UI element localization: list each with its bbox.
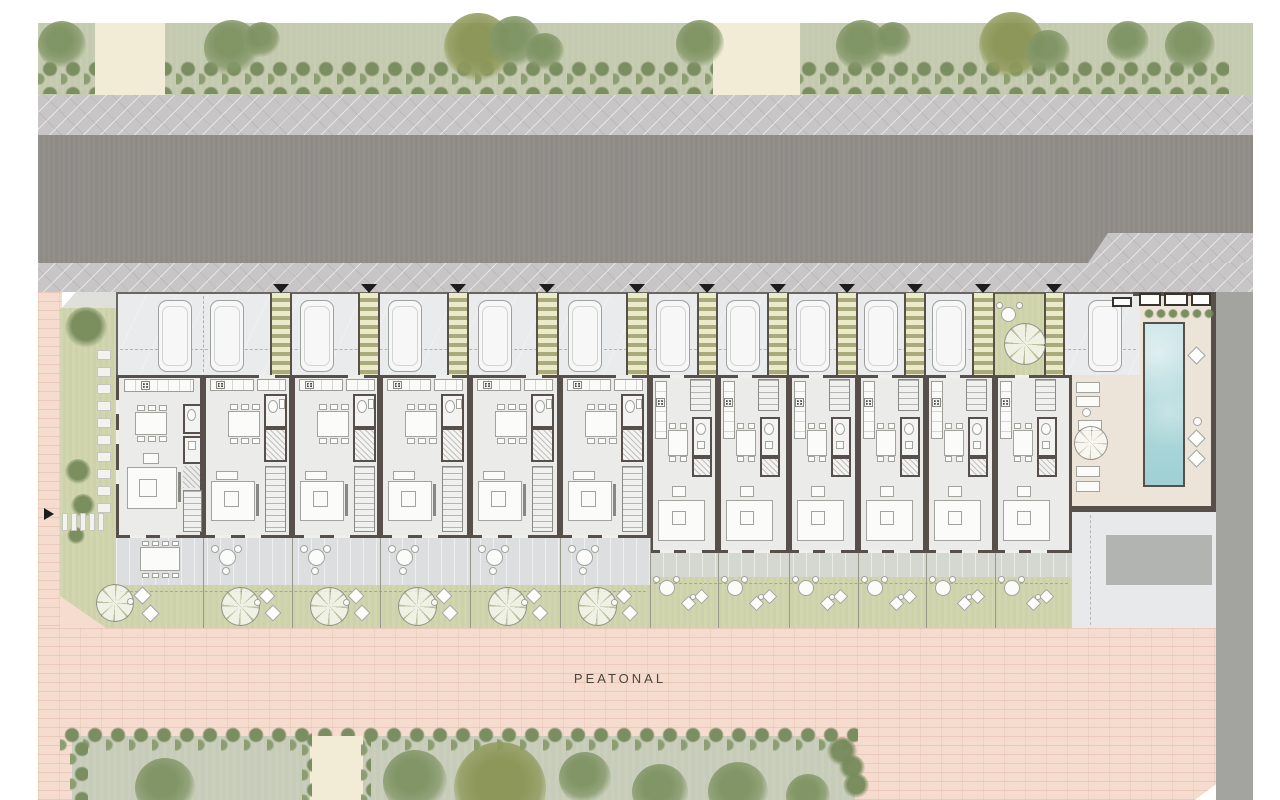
dining-table [495, 411, 527, 437]
car-body-line [936, 306, 962, 366]
entry-pergola [697, 293, 718, 375]
planter-plant [1144, 309, 1154, 319]
door-opening [1015, 375, 1029, 378]
sun-lounger [1076, 466, 1100, 477]
dining-table [405, 411, 437, 437]
chair [341, 404, 349, 410]
terrace-table [140, 547, 180, 571]
toilet [972, 423, 982, 435]
stove-icon [795, 398, 804, 407]
access-ramp [1106, 535, 1212, 585]
car-body-line [392, 306, 418, 366]
chair [996, 302, 1003, 309]
chair [222, 567, 230, 575]
sink [188, 441, 196, 450]
entry-arrow-icon [839, 284, 855, 293]
pouf [127, 598, 134, 605]
planter-plant [1204, 309, 1214, 319]
door-opening [526, 375, 542, 378]
shower-room [621, 428, 644, 462]
amenity-dashed-line [1090, 515, 1091, 625]
window [728, 550, 742, 553]
plot-divider [718, 553, 719, 628]
window [116, 430, 119, 444]
pouf [898, 594, 904, 600]
chair [721, 576, 728, 583]
chair [741, 576, 748, 583]
terrace-table [576, 549, 593, 566]
garden-tree [578, 587, 617, 626]
window [160, 535, 176, 538]
sink [456, 399, 462, 409]
kitchen-cabinet [434, 379, 463, 391]
stepping-stone [97, 503, 111, 513]
chair [1014, 423, 1021, 429]
toilet [764, 423, 774, 435]
tree [676, 20, 724, 68]
stairs [265, 466, 286, 532]
chair [998, 576, 1005, 583]
courtyard-table [1001, 307, 1016, 322]
coffee-table [401, 491, 416, 507]
car-body-line [214, 306, 240, 366]
sidewalk-north [38, 95, 1253, 135]
plot-divider [203, 538, 204, 628]
plot-divider [292, 538, 293, 628]
sun-lounger [1076, 481, 1100, 492]
pouf [966, 594, 972, 600]
stove-icon [305, 381, 314, 389]
dining-table [317, 411, 349, 437]
sink [279, 399, 285, 409]
car-body-line [162, 306, 188, 366]
toilet [187, 409, 196, 421]
window [936, 550, 950, 553]
garden-tree [488, 587, 527, 626]
car-body-line [1092, 306, 1118, 366]
shower-room [441, 428, 464, 462]
garden-dashed-line-west [120, 591, 646, 592]
entry-arrow-icon [699, 284, 715, 293]
pedestrian-street-label: PEATONAL [540, 671, 700, 686]
window [482, 535, 498, 538]
dining-table [135, 412, 167, 435]
stepping-stone [97, 350, 111, 360]
sink [546, 399, 552, 409]
sun-lounger [1076, 382, 1100, 393]
chair [311, 567, 319, 575]
chair [737, 423, 744, 429]
stairs [1035, 379, 1056, 411]
stove-icon [1001, 398, 1010, 407]
tree [1165, 21, 1215, 71]
north-path-east [713, 23, 800, 95]
dining-table [585, 411, 617, 437]
tv-bench [672, 486, 686, 497]
coffee-table [811, 511, 825, 525]
shower-room [531, 428, 554, 462]
chair [508, 438, 516, 444]
chair [429, 438, 437, 444]
chair [319, 404, 327, 410]
garden-tree [221, 587, 260, 626]
stove-icon [932, 398, 941, 407]
chair [478, 545, 486, 553]
plot-divider [858, 553, 859, 628]
shower-room [1037, 457, 1057, 477]
chair [399, 567, 407, 575]
hedge-bush [843, 773, 869, 799]
coffee-table [948, 511, 962, 525]
chair [501, 545, 509, 553]
door-opening [946, 375, 960, 378]
sink [905, 441, 913, 449]
entry-pergola [270, 293, 292, 375]
tv-bench [811, 486, 825, 497]
tree [1026, 30, 1070, 74]
entry-pergola [626, 293, 649, 375]
entry-arrow-icon [907, 284, 923, 293]
coffee-table [313, 491, 328, 507]
window [392, 535, 408, 538]
window [512, 535, 528, 538]
chair [211, 545, 219, 553]
planter-plant [1180, 309, 1190, 319]
tv [523, 484, 526, 516]
tv-bench [1017, 486, 1031, 497]
east-road [1216, 292, 1253, 800]
window [245, 535, 261, 538]
entry-pergola [972, 293, 995, 375]
chair [172, 541, 179, 546]
chair [162, 573, 169, 578]
stairs [622, 466, 643, 532]
window [962, 550, 978, 553]
sink [836, 441, 844, 449]
park-path-hedge-left [302, 731, 312, 800]
chair [152, 541, 159, 546]
clerestory-window [1191, 293, 1211, 306]
chair [956, 456, 963, 462]
sink [765, 441, 773, 449]
plot-divider [650, 538, 651, 628]
pouf [1035, 594, 1041, 600]
toilet [357, 400, 367, 413]
chair [609, 404, 617, 410]
window [602, 535, 618, 538]
chair [300, 545, 308, 553]
plot-divider [560, 538, 561, 628]
pouf [431, 599, 438, 606]
site-plan: PEATONAL [0, 0, 1280, 800]
stepping-stone [97, 486, 111, 496]
park-path-hedge-right [361, 731, 371, 800]
bush [65, 307, 107, 349]
garden-table [935, 580, 951, 596]
kitchen-counter [1000, 381, 1012, 439]
clerestory-window [1112, 297, 1132, 307]
chair [568, 545, 576, 553]
stepping-stone [97, 418, 111, 428]
chair [587, 438, 595, 444]
garden-table [798, 580, 814, 596]
pouf [611, 599, 618, 606]
chair [792, 576, 799, 583]
clerestory-window [1164, 293, 1188, 306]
tv-bench [216, 471, 238, 480]
pouf [254, 599, 261, 606]
terrace-table [486, 549, 503, 566]
plot-divider [789, 553, 790, 628]
chair [519, 404, 527, 410]
shower-room [692, 457, 712, 477]
chair [808, 423, 815, 429]
tv-bench [305, 471, 327, 480]
tree [526, 33, 564, 71]
chair [330, 404, 338, 410]
kitchen-cabinet [346, 379, 375, 391]
window [572, 535, 588, 538]
car-body-line [800, 306, 826, 366]
tv-bench [880, 486, 894, 497]
kitchen-counter [723, 381, 735, 439]
stove-icon [216, 381, 225, 389]
tv-bench [483, 471, 505, 480]
stove-icon [656, 398, 665, 407]
stepping-stone [97, 452, 111, 462]
toilet [625, 400, 635, 413]
tree [875, 22, 911, 58]
entry-arrow-icon [273, 284, 289, 293]
stepping-stone [97, 401, 111, 411]
tree [38, 21, 86, 69]
chair [142, 541, 149, 546]
dining-table [228, 411, 260, 437]
chair [1025, 423, 1032, 429]
shower-room [900, 457, 920, 477]
chair [1014, 456, 1021, 462]
door-opening [670, 375, 684, 378]
north-path-west [95, 23, 165, 95]
chair [319, 438, 327, 444]
stepping-stone [97, 384, 111, 394]
chair [609, 438, 617, 444]
shower-room [968, 457, 988, 477]
dining-table [1013, 430, 1033, 456]
toilet [904, 423, 914, 435]
courtyard-tree [1004, 323, 1046, 365]
car-body-line [304, 306, 330, 366]
stove-icon [724, 398, 733, 407]
car-body-line [660, 306, 686, 366]
under-stairs [183, 466, 202, 488]
window [422, 535, 438, 538]
entry-pergola [1044, 293, 1065, 375]
chair [330, 438, 338, 444]
sink [368, 399, 374, 409]
chair [252, 404, 260, 410]
garden-table [867, 580, 883, 596]
sidewalk-south [38, 263, 1253, 292]
parking-divider [203, 296, 204, 372]
chair [252, 438, 260, 444]
window [868, 550, 882, 553]
swimming-pool [1143, 322, 1185, 487]
terrace-table [396, 549, 413, 566]
dining-table [876, 430, 896, 456]
chair [598, 404, 606, 410]
entry-arrow-icon [975, 284, 991, 293]
sink [1042, 441, 1050, 449]
kitchen-counter [794, 381, 806, 439]
chair [172, 573, 179, 578]
car-body-line [730, 306, 756, 366]
chair [808, 456, 815, 462]
pouf [343, 599, 350, 606]
chair [407, 438, 415, 444]
entry-arrow-icon [450, 284, 466, 293]
chair [945, 423, 952, 429]
pouf [758, 594, 764, 600]
kitchen-cabinet [524, 379, 553, 391]
terraces-east-block [650, 553, 1072, 577]
window [116, 400, 119, 414]
planter-plant [1168, 309, 1178, 319]
plot-divider [380, 538, 381, 628]
door-opening [616, 375, 632, 378]
window [686, 550, 702, 553]
chair [881, 576, 888, 583]
bush [65, 459, 91, 485]
entry-pergola [447, 293, 469, 375]
tv [433, 484, 436, 516]
coffee-table [1017, 511, 1031, 525]
shower-room [353, 428, 376, 462]
door-opening [878, 375, 892, 378]
stove-icon [393, 381, 402, 389]
entry-arrow-icon [361, 284, 377, 293]
entry-arrow-icon [770, 284, 786, 293]
plot-divider [995, 553, 996, 628]
stairs [758, 379, 779, 411]
kitchen-cabinet [614, 379, 643, 391]
chair [407, 404, 415, 410]
chair [669, 423, 676, 429]
stepping-stone [89, 513, 95, 531]
chair [819, 456, 826, 462]
tv [256, 484, 259, 516]
kitchen-cabinet [257, 379, 286, 391]
door-opening [809, 375, 823, 378]
chair [748, 423, 755, 429]
park-path [310, 736, 363, 800]
tv [613, 484, 616, 516]
chair [929, 576, 936, 583]
window [116, 470, 119, 484]
stepping-stone [71, 513, 77, 531]
chair [945, 456, 952, 462]
west-entry-arrow-icon [44, 508, 54, 520]
chair [877, 423, 884, 429]
entry-pergola [767, 293, 789, 375]
chair [230, 438, 238, 444]
chair [737, 456, 744, 462]
tv [178, 472, 181, 502]
garden-table [727, 580, 743, 596]
chair [587, 404, 595, 410]
chair [230, 404, 238, 410]
coffee-table [224, 491, 239, 507]
chair [323, 545, 331, 553]
chair [148, 436, 156, 442]
sink [636, 399, 642, 409]
chair [680, 456, 687, 462]
planter-plant [1192, 309, 1202, 319]
stepping-stone [80, 513, 86, 531]
parking-west-line [116, 292, 118, 375]
chair [861, 576, 868, 583]
tree [1107, 21, 1149, 63]
entry-pergola [836, 293, 858, 375]
chair [812, 576, 819, 583]
terrace-table [219, 549, 236, 566]
dining-table [807, 430, 827, 456]
window [130, 535, 146, 538]
sun-lounger [1076, 396, 1100, 407]
car-body-line [482, 306, 508, 366]
chair [388, 545, 396, 553]
door-opening [436, 375, 452, 378]
chair [819, 423, 826, 429]
pool-hall-right-wall [1211, 292, 1216, 508]
coffee-table [139, 479, 157, 497]
road [38, 135, 1253, 263]
park-tree [559, 752, 611, 800]
window [215, 535, 231, 538]
window [754, 550, 770, 553]
chair [137, 405, 145, 411]
chair [341, 438, 349, 444]
chair [949, 576, 956, 583]
side-table [1082, 408, 1091, 417]
chair [497, 438, 505, 444]
chair [680, 423, 687, 429]
chair [579, 567, 587, 575]
clerestory-window [1139, 293, 1161, 306]
entry-pergola [536, 293, 559, 375]
park-hedge-row [60, 726, 858, 752]
chair [888, 423, 895, 429]
chair [241, 404, 249, 410]
entry-arrow-icon [539, 284, 555, 293]
entry-pergola [358, 293, 380, 375]
chair [1018, 576, 1025, 583]
stepping-stone [97, 435, 111, 445]
chair [519, 438, 527, 444]
tv [345, 484, 348, 516]
kitchen-counter [124, 379, 194, 392]
chair [653, 576, 660, 583]
dining-table [668, 430, 688, 456]
toilet [835, 423, 845, 435]
dining-table [944, 430, 964, 456]
door-opening [348, 375, 364, 378]
door-opening [738, 375, 752, 378]
stepping-stone [62, 513, 68, 531]
kitchen-counter [655, 381, 667, 439]
window [1005, 550, 1019, 553]
armchair [143, 453, 159, 464]
